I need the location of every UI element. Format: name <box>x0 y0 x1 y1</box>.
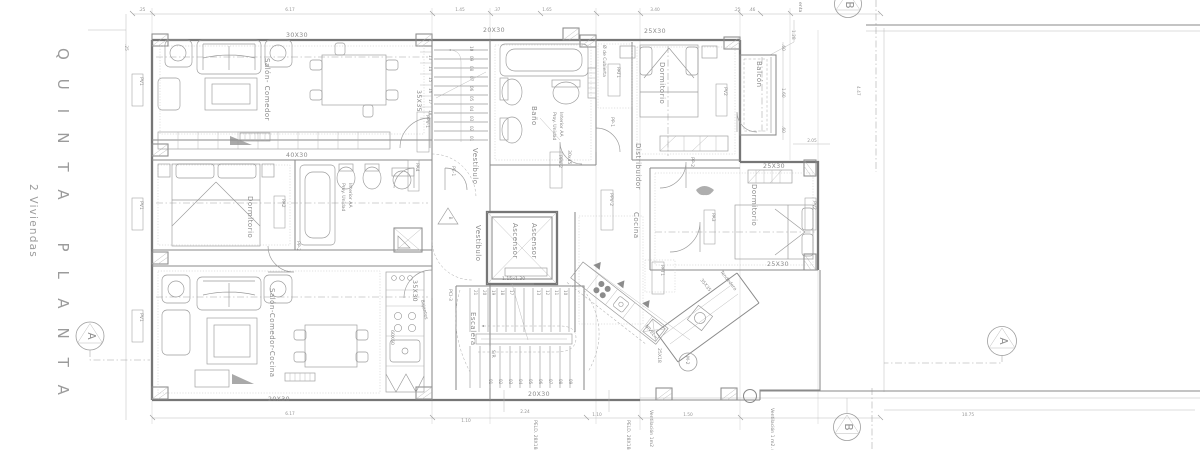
section-marker-a-right: A <box>884 327 1017 364</box>
svg-text:07: 07 <box>548 379 553 385</box>
room-labels: Salón- Comedor Dormitorio Salón-Comedor-… <box>246 58 763 378</box>
opening-label-pa3: PA3 <box>710 213 716 222</box>
room-label-salon1: Salón- Comedor <box>263 58 271 121</box>
svg-text:18: 18 <box>500 290 505 296</box>
opening-label-ppv2: PPV-2 <box>608 193 614 206</box>
annotation-cubierta: Ø de Cubierta <box>601 45 608 77</box>
svg-text:B: B <box>843 1 855 8</box>
sheet-title: QUINTA PLANTA <box>54 48 72 414</box>
tile-label: 20X30 <box>528 391 550 398</box>
section-marker-b-top: B <box>835 0 862 18</box>
svg-text:1.10: 1.10 <box>461 418 471 424</box>
floorplan-sheet: QUINTA PLANTA 2 Viviendas <box>0 0 1200 450</box>
svg-text:2.05: 2.05 <box>807 138 817 144</box>
svg-text:10.75: 10.75 <box>962 412 975 418</box>
room-label-balcon: Balcón <box>755 61 763 88</box>
room-label-bano: Baño <box>530 106 538 126</box>
annotation-vent2: Ventilación 1 m2. min. <box>769 408 776 450</box>
svg-text:B: B <box>842 423 854 430</box>
opening-label-pp2: PP-2 <box>689 157 695 167</box>
opening-label-pv1: PV1 <box>138 201 144 210</box>
svg-text:A: A <box>997 337 1009 345</box>
furniture-dorm2 <box>620 45 728 151</box>
svg-text:.60: .60 <box>780 44 786 51</box>
svg-text:.25: .25 <box>123 44 129 51</box>
room-label-dorm3: Dormitorio <box>750 184 758 226</box>
detail-marker-b: B <box>448 217 453 220</box>
svg-text:13: 13 <box>428 55 433 61</box>
furniture-dorm1 <box>158 164 274 246</box>
svg-text:6.17: 6.17 <box>285 411 295 417</box>
svg-text:04: 04 <box>469 106 474 112</box>
opening-label-pat1: PAT1 <box>659 265 665 276</box>
tile-label: 60X60 <box>389 330 395 345</box>
svg-text:08: 08 <box>558 379 563 385</box>
svg-text:06: 06 <box>469 86 474 92</box>
svg-text:06: 06 <box>538 379 543 385</box>
svg-text:1.65: 1.65 <box>542 7 552 13</box>
svg-text:.60: .60 <box>780 126 786 133</box>
svg-text:09: 09 <box>568 379 573 385</box>
svg-text:13: 13 <box>536 290 541 296</box>
tile-label: 25X30 <box>763 163 785 170</box>
opening-label-ppv1: PPV-1 <box>424 115 430 128</box>
room-label-salon2: Salón-Comedor-Cocina <box>268 288 276 378</box>
svg-text:10: 10 <box>563 290 568 296</box>
opening-label-pci3: PCI-3 <box>447 289 453 301</box>
room-label-escalera: Escalera <box>469 312 477 346</box>
svg-text:01: 01 <box>469 136 474 142</box>
svg-text:14: 14 <box>428 66 433 72</box>
svg-text:02: 02 <box>469 126 474 132</box>
svg-text:03: 03 <box>508 379 513 385</box>
room-label-dorm1: Dormitorio <box>246 196 254 238</box>
svg-text:05: 05 <box>469 96 474 102</box>
furniture-bath1 <box>500 44 588 143</box>
svg-text:.46: .46 <box>749 7 756 13</box>
svg-text:.25: .25 <box>139 7 146 13</box>
tile-label: 35X30 <box>411 280 418 302</box>
svg-text:09: 09 <box>469 56 474 62</box>
room-label-vestibulo-2: Vestíbulo <box>474 225 482 262</box>
svg-text:.25: .25 <box>734 7 741 13</box>
opening-label-ppv2: PPV-2 <box>557 155 563 168</box>
section-markers: A A B B <box>76 0 1017 441</box>
opening-label-pv2: PV2 <box>811 201 817 210</box>
tile-label: 25X18 <box>656 348 662 363</box>
svg-text:1.10: 1.10 <box>592 412 602 418</box>
tile-label: 25X30 <box>644 28 666 35</box>
svg-text:05: 05 <box>528 379 533 385</box>
section-marker-a-left: A <box>76 322 150 360</box>
annotation-proy-2a: Proy. Unidad <box>340 183 346 212</box>
opening-label-pv1: PV1 <box>138 77 144 86</box>
svg-text:1.28: 1.28 <box>790 30 796 40</box>
svg-text:03: 03 <box>469 116 474 122</box>
tile-label: 35X35 <box>698 278 712 293</box>
svg-text:20: 20 <box>482 290 487 296</box>
svg-text:02: 02 <box>498 379 503 385</box>
room-label-distribuidor: Distribuidor <box>634 143 642 190</box>
title-block: QUINTA PLANTA 2 Viviendas <box>27 48 72 414</box>
tile-label: 20X30 <box>268 396 290 403</box>
svg-text:6.17: 6.17 <box>285 7 295 13</box>
tile-label: 40X30 <box>286 152 308 159</box>
annotation-proy-2b: Interior AA <box>347 183 353 208</box>
annotation-elevator-size: 1.15x1.30 <box>502 276 525 282</box>
axis-lines <box>156 46 815 297</box>
tile-label: 25X30 <box>767 261 789 268</box>
sheet-subtitle: 2 Viviendas <box>27 184 39 258</box>
svg-text:2.24: 2.24 <box>520 409 530 415</box>
annotation-fragment: enta <box>797 2 803 13</box>
svg-text:15: 15 <box>428 77 433 83</box>
svg-text:12: 12 <box>545 290 550 296</box>
room-label-cocina: Cocina <box>632 212 640 239</box>
opening-label-pp2: PP-2 <box>295 241 301 251</box>
svg-text:19: 19 <box>491 290 496 296</box>
svg-text:01: 01 <box>488 379 493 385</box>
svg-text:21: 21 <box>473 290 478 296</box>
section-marker-b-bottom: B <box>834 398 861 441</box>
opening-label-pv2: PV2 <box>722 87 728 96</box>
svg-text:18: 18 <box>428 110 433 116</box>
svg-text:A: A <box>85 332 97 340</box>
annotation-vent1: Ventilación 1m2 <box>648 410 655 447</box>
opening-label-pat1: PAT1 <box>615 67 621 78</box>
tile-label: 35X35 <box>415 90 422 112</box>
room-label-ascensor-1: Ascensor <box>511 223 519 259</box>
annotation-bajantes: Bajantes <box>419 299 429 320</box>
opening-label-pe1: PE-1 <box>450 166 456 176</box>
svg-text:1.45: 1.45 <box>455 7 465 13</box>
tile-label: 30X30 <box>286 32 308 39</box>
opening-label-pp1: PP-1 <box>609 117 615 127</box>
annotation-proy-1b: Interior AA <box>558 112 564 137</box>
opening-label-pa4: PA4 <box>414 163 420 172</box>
annotation-proy-1a: Proy. Unidad <box>551 112 557 141</box>
tile-label: 20X30 <box>483 27 505 34</box>
svg-text:17: 17 <box>428 99 433 105</box>
svg-text:10: 10 <box>469 46 474 52</box>
svg-text:08: 08 <box>469 66 474 72</box>
opening-label-pv1: PV1 <box>138 313 144 322</box>
opening-label-pa2: PA2 <box>280 199 286 208</box>
svg-text:16: 16 <box>428 88 433 94</box>
svg-text:04: 04 <box>518 379 523 385</box>
svg-text:11: 11 <box>554 290 559 296</box>
room-label-vestibulo-1: Vestíbulo <box>471 148 479 185</box>
elevator <box>487 212 557 284</box>
svg-text:4.47: 4.47 <box>855 86 861 96</box>
room-label-tendedero: Tendedero <box>718 269 738 292</box>
svg-text:.37: .37 <box>494 7 501 13</box>
furniture-salon1 <box>158 40 398 149</box>
room-label-ascensor-2: Ascensor <box>530 223 538 259</box>
tile-label: 30x45 <box>566 150 572 164</box>
furniture-bath2 <box>300 164 422 252</box>
svg-text:1.60: 1.60 <box>780 88 786 98</box>
label-sr: S/R <box>490 350 496 358</box>
room-label-dorm2: Dormitorio <box>658 62 666 104</box>
svg-text:07: 07 <box>469 76 474 82</box>
floorplan-drawing: QUINTA PLANTA 2 Viviendas <box>0 0 1200 450</box>
annotation-peld: PELD. 28X18c <box>532 420 538 450</box>
svg-text:3.40: 3.40 <box>650 7 660 13</box>
svg-text:17: 17 <box>509 290 514 296</box>
svg-text:1.50: 1.50 <box>683 412 693 418</box>
furniture-salon2 <box>162 275 368 387</box>
annotation-m2: M-2 <box>684 356 690 365</box>
annotation-peld: PELD. 28X18c <box>625 420 631 450</box>
